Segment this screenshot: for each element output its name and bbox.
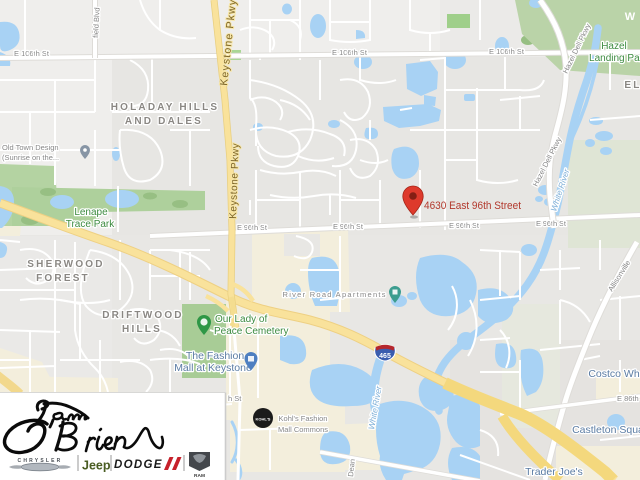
svg-text:Hazel: Hazel [601,41,627,52]
svg-text:E 86th St: E 86th St [617,394,640,403]
svg-text:h St: h St [228,394,242,403]
svg-text:E 96th St: E 96th St [449,221,480,230]
svg-text:E 106th St: E 106th St [489,47,525,56]
svg-text:E 106th St: E 106th St [14,49,50,58]
svg-text:Mall at Keystone: Mall at Keystone [174,362,252,374]
svg-text:4630 East 96th Street: 4630 East 96th Street [424,200,521,212]
svg-text:Old Town Design: Old Town Design [2,143,59,152]
svg-text:Landing Par: Landing Par [589,53,640,64]
svg-text:HILLS: HILLS [122,324,162,335]
svg-text:HOLADAY HILLS: HOLADAY HILLS [111,102,220,113]
svg-text:Costco Wh: Costco Wh [588,368,640,380]
svg-text:FOREST: FOREST [36,273,90,284]
svg-text:465: 465 [379,353,391,360]
svg-text:DRIFTWOOD: DRIFTWOOD [102,310,183,321]
svg-text:Kohl's Fashion: Kohl's Fashion [279,414,328,423]
svg-text:(Sunrise on the...: (Sunrise on the... [2,153,59,162]
svg-text:E 96th St: E 96th St [237,223,268,232]
svg-text:Lenape: Lenape [74,207,108,218]
svg-text:Dean: Dean [346,458,357,477]
svg-text:E 106th St: E 106th St [332,48,368,57]
svg-text:Castleton Squa: Castleton Squa [572,424,640,436]
svg-text:Trace Park: Trace Park [66,219,116,230]
svg-text:E 96th St: E 96th St [536,219,567,228]
svg-text:Jeep: Jeep [82,459,111,473]
svg-text:W: W [625,11,636,23]
svg-text:KOHL'S: KOHL'S [256,417,271,422]
svg-text:field Blvd: field Blvd [91,7,102,38]
svg-text:Trader Joe's: Trader Joe's [525,466,583,478]
svg-text:Mall Commons: Mall Commons [278,425,328,434]
svg-text:The Fashion: The Fashion [186,350,245,362]
svg-text:River Road Apartments: River Road Apartments [283,290,386,299]
svg-text:Peace Cemetery: Peace Cemetery [214,326,288,337]
svg-text:E 96th St: E 96th St [333,222,364,231]
svg-text:DODGE: DODGE [114,459,163,471]
svg-text:RAM: RAM [194,473,205,479]
svg-text:SHERWOOD: SHERWOOD [27,259,104,270]
svg-text:AND DALES: AND DALES [125,116,203,127]
svg-text:EL: EL [624,80,640,91]
svg-text:Our Lady of: Our Lady of [215,314,267,325]
